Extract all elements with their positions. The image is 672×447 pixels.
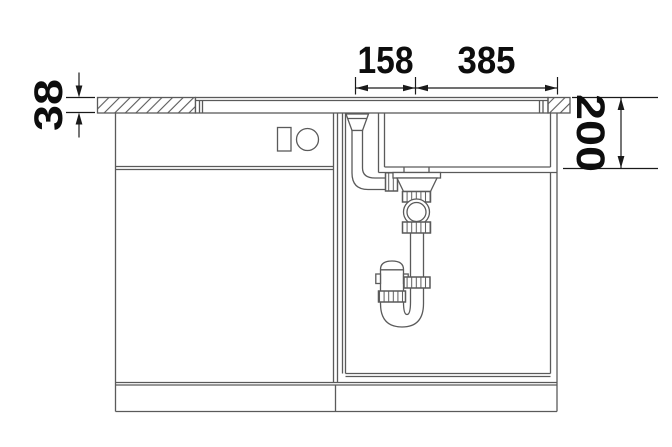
cleanout-plug bbox=[381, 261, 404, 270]
dim-38-label: 38 bbox=[27, 79, 71, 131]
sink-section-drawing: 158 385 38 200 bbox=[0, 0, 672, 447]
countertop-hatch-left bbox=[98, 98, 196, 114]
countertop-hatch-right bbox=[548, 98, 570, 114]
cabinet-outline bbox=[116, 113, 558, 412]
drawer-handle-rect bbox=[278, 128, 292, 152]
strainer-cup bbox=[397, 178, 437, 192]
drain-strainer bbox=[386, 173, 441, 234]
sink-bowl bbox=[379, 113, 558, 173]
sink-rim-profile bbox=[196, 98, 549, 114]
countertop bbox=[98, 98, 571, 114]
dim-158-label: 158 bbox=[358, 40, 414, 82]
overflow-funnel bbox=[346, 114, 369, 131]
overflow-pipe bbox=[346, 114, 387, 190]
dim-385-label: 385 bbox=[458, 40, 516, 82]
siphon-trap bbox=[376, 233, 430, 327]
drawer-knob-circle bbox=[297, 129, 319, 151]
overflow-elbow bbox=[352, 131, 387, 190]
dim-200-label: 200 bbox=[568, 94, 612, 172]
strainer-flange bbox=[393, 173, 441, 179]
technical-drawing-page: 158 385 38 200 bbox=[0, 0, 672, 447]
